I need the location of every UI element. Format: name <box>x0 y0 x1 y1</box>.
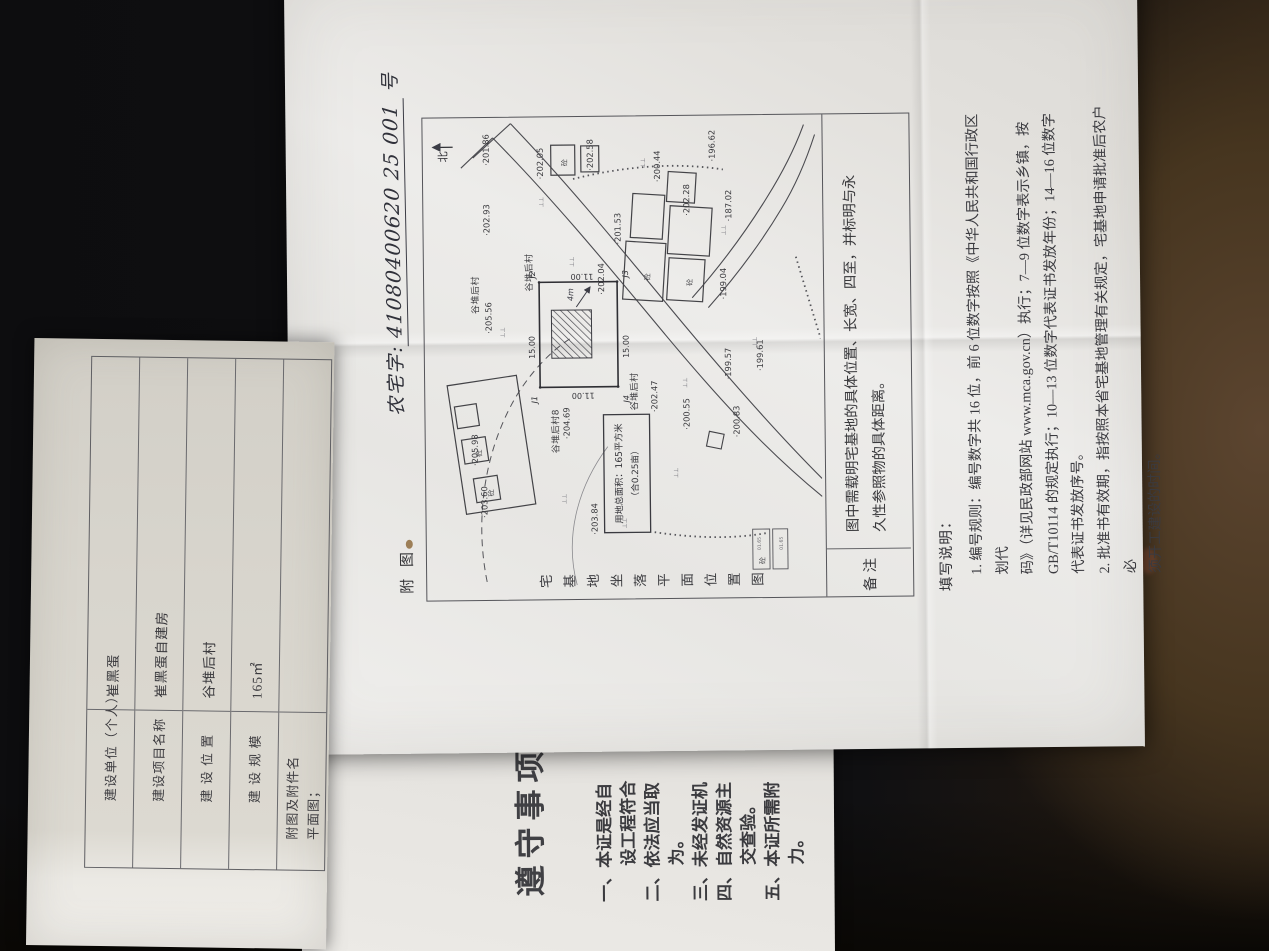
rule-line: 力。 <box>784 725 810 940</box>
elevation-label: ·196.62 <box>706 130 716 162</box>
grass-symbol: ⊥⊥ <box>673 467 680 478</box>
plot-length-label: 15.00 <box>528 336 537 359</box>
elevation-label: ·200.83 <box>731 406 741 438</box>
elevation-label: ·202.47 <box>649 380 659 412</box>
legend-entry: 01.65 <box>779 537 785 550</box>
elevation-label: ·201.53 <box>612 213 622 245</box>
rule-line: 三、未经发证机 <box>688 726 714 941</box>
row-value: 165㎡ <box>231 359 283 712</box>
fold-crease <box>910 0 938 748</box>
elevation-label: ·204.69 <box>561 407 571 439</box>
legend-entry: 砼 <box>758 557 767 564</box>
row-value <box>279 360 331 713</box>
plot-width-label: 11.00 <box>571 272 594 281</box>
map-and-remark-box: 宅基地坐落平面位置图 <box>421 113 914 602</box>
elevation-label: ·200.55 <box>681 398 691 430</box>
row-label: 建 设 位 置 <box>181 710 230 869</box>
elevation-label: ·199.57 <box>723 348 733 380</box>
attached-map-label: 附 图 <box>396 548 417 594</box>
project-form-table: 建设单位（个人） 崔黑蛋 建设项目名称 崔黑蛋自建房 建 设 位 置 谷堆后村 … <box>84 356 332 871</box>
rule-line: 设工程符合 <box>616 727 642 942</box>
site-plan-vertical-title: 宅基地坐落平面位置图 <box>539 571 774 593</box>
remark-label: 备注 <box>827 548 911 597</box>
village-label: 谷堆后村 <box>628 372 640 410</box>
slope-lines <box>573 164 823 538</box>
dashed-path <box>480 337 575 582</box>
row-value: 谷堆后村 <box>183 358 235 711</box>
attachment-label-line: 平面图； <box>302 713 323 840</box>
elevation-label: ·200.44 <box>652 150 662 182</box>
instruction-line: 1. 编号规则：编号数字共 16 位，前 6 位数字按照《中华人民共和国行政区划… <box>960 99 1016 575</box>
table-row: 建设项目名称 崔黑蛋自建房 <box>133 358 188 869</box>
building-cluster-right <box>623 169 715 304</box>
grass-symbol: ⊥⊥ <box>538 197 545 208</box>
plot-corner <box>617 385 620 388</box>
grass-symbol: ⊥⊥ <box>682 377 689 388</box>
permit-sheet: 农宅字:41080400620 25 001号 附 图 宅基地坐落平面位置图 <box>284 0 1145 755</box>
roads <box>460 120 822 500</box>
elevation-label: ·202.93 <box>481 204 491 236</box>
photo-of-permit-documents: 遵守事项 一、本证是经自 设工程符合 二、依法应当取 为。 三、未经发证机 四、… <box>0 0 1269 951</box>
grass-symbol: ⊥⊥ <box>500 327 507 338</box>
row-label: 附图及附件名 平面图； <box>277 712 326 871</box>
elevation-label: ·202.04 <box>596 263 606 295</box>
permit-number-suffix: 号 <box>379 73 401 92</box>
grass-symbol: ⊥⊥ <box>622 518 629 529</box>
elevation-label: ·203.60 <box>479 486 489 518</box>
grass-symbol: ⊥⊥ <box>720 225 727 236</box>
building-material-label: 砼 <box>643 273 652 280</box>
rule-line: 五、本证所需附 <box>760 726 786 941</box>
elevation-label: ·205.56 <box>483 302 493 334</box>
instruction-line: GB/T10114 的规定执行；10—13 位数字代表证书发放年份；14—16 … <box>1037 99 1068 574</box>
rules-items: 一、本证是经自 设工程符合 二、依法应当取 为。 三、未经发证机 四、自然资源主… <box>592 725 809 942</box>
table-row: 附图及附件名 平面图； <box>277 360 331 871</box>
elevation-label: ·199.04 <box>718 268 728 300</box>
plot-corner <box>616 280 619 283</box>
elevation-label: ·202.28 <box>681 184 691 216</box>
handwritten-annotation: 4m <box>566 288 575 301</box>
fill-instructions-title: 填写说明： <box>935 514 957 592</box>
row-label: 建 设 规 模 <box>229 711 278 870</box>
legend-entry: 01.65 <box>757 537 763 550</box>
building-material-label: 砼 <box>685 279 694 286</box>
table-row: 建 设 位 置 谷堆后村 <box>181 358 236 869</box>
small-structure <box>706 431 724 449</box>
remark-row: 备注 图中需载明宅基地的具体位置、长宽、四至，并标明与永 久性参照物的具体距离。 <box>822 114 911 597</box>
elevation-label: ·199.61 <box>755 339 765 371</box>
table-row: 建设单位（个人） 崔黑蛋 <box>85 357 140 868</box>
rules-title: 遵守事项 <box>505 744 551 896</box>
area-annotation-line: 用地总面积：165平方米 <box>613 423 626 523</box>
permit-number-line: 农宅字:41080400620 25 001号 <box>375 73 410 416</box>
elevation-label: ·201.86 <box>481 134 491 166</box>
village-label: 谷堆后村8 <box>549 409 561 453</box>
elevation-label: ·205.98 <box>470 434 480 466</box>
area-annotation-line: （合0.25亩） <box>629 446 642 501</box>
row-label: 建设项目名称 <box>133 710 182 869</box>
grass-symbol: ⊥⊥ <box>569 257 576 268</box>
fill-instructions: 1. 编号规则：编号数字共 16 位，前 6 位数字按照《中华人民共和国行政区划… <box>960 98 1170 575</box>
elevation-label: ·202.58 <box>585 139 595 171</box>
site-plan-cell: 宅基地坐落平面位置图 <box>422 114 827 600</box>
village-label: 谷堆后村 <box>523 253 535 291</box>
proposed-house <box>551 310 592 358</box>
plot-corner-label: J1 <box>530 396 539 406</box>
table-row: 建 设 规 模 165㎡ <box>229 359 284 870</box>
compass-label: 北 <box>437 151 450 162</box>
rule-line: 为。 <box>664 726 690 941</box>
site-plan-drawing: 砼 砼 砼 砼 <box>422 114 823 600</box>
annotation-arrow <box>576 287 590 307</box>
row-value: 崔黑蛋 <box>87 357 139 710</box>
area-annotation-box <box>603 414 650 532</box>
attachment-label-line: 附图及附件名 <box>281 713 302 840</box>
row-value: 崔黑蛋自建房 <box>135 358 187 711</box>
grass-symbol: ⊥⊥ <box>561 494 568 505</box>
plot-corner <box>538 281 541 284</box>
plot-width-label: 11.00 <box>572 391 595 400</box>
building-material-label: 砼 <box>560 159 569 166</box>
instruction-line: 2. 批准书有效期，指按照本省宅基地管理有关规定，宅基地申请批准后农户必 <box>1088 98 1144 574</box>
rule-line: 一、本证是经自 <box>592 727 618 942</box>
plot-length-label: 15.00 <box>622 335 631 358</box>
elevation-label: ·187.02 <box>723 190 733 222</box>
project-form-sheet: 建设单位（个人） 崔黑蛋 建设项目名称 崔黑蛋自建房 建 设 位 置 谷堆后村 … <box>26 338 334 949</box>
instruction-line: 须开工建设的时间。 <box>1139 98 1170 573</box>
permit-number-prefix: 农宅字: <box>385 344 408 416</box>
grass-symbol: ⊥⊥ <box>640 158 647 169</box>
plot-corner-label: J3 <box>621 270 630 280</box>
rule-line: 二、依法应当取 <box>640 726 666 941</box>
row-label: 建设单位（个人） <box>85 709 134 868</box>
remark-line: 久性参照物的具体距离。 <box>863 124 894 532</box>
rule-line: 交查验。 <box>736 726 762 941</box>
compass-north-icon: 北 <box>433 147 453 162</box>
rule-line: 四、自然资源主 <box>712 726 738 941</box>
elevation-label: ·203.84 <box>589 503 599 535</box>
permit-number-value: 41080400620 25 001 <box>378 95 409 346</box>
plot-corner <box>539 386 542 389</box>
elevation-label: ·202.05 <box>535 148 545 180</box>
village-label: 谷堆后村 <box>469 276 481 314</box>
remark-line: 图中需载明宅基地的具体位置、长宽、四至，并标明与永 <box>836 124 867 532</box>
remark-content: 图中需载明宅基地的具体位置、长宽、四至，并标明与永 久性参照物的具体距离。 <box>822 114 911 549</box>
